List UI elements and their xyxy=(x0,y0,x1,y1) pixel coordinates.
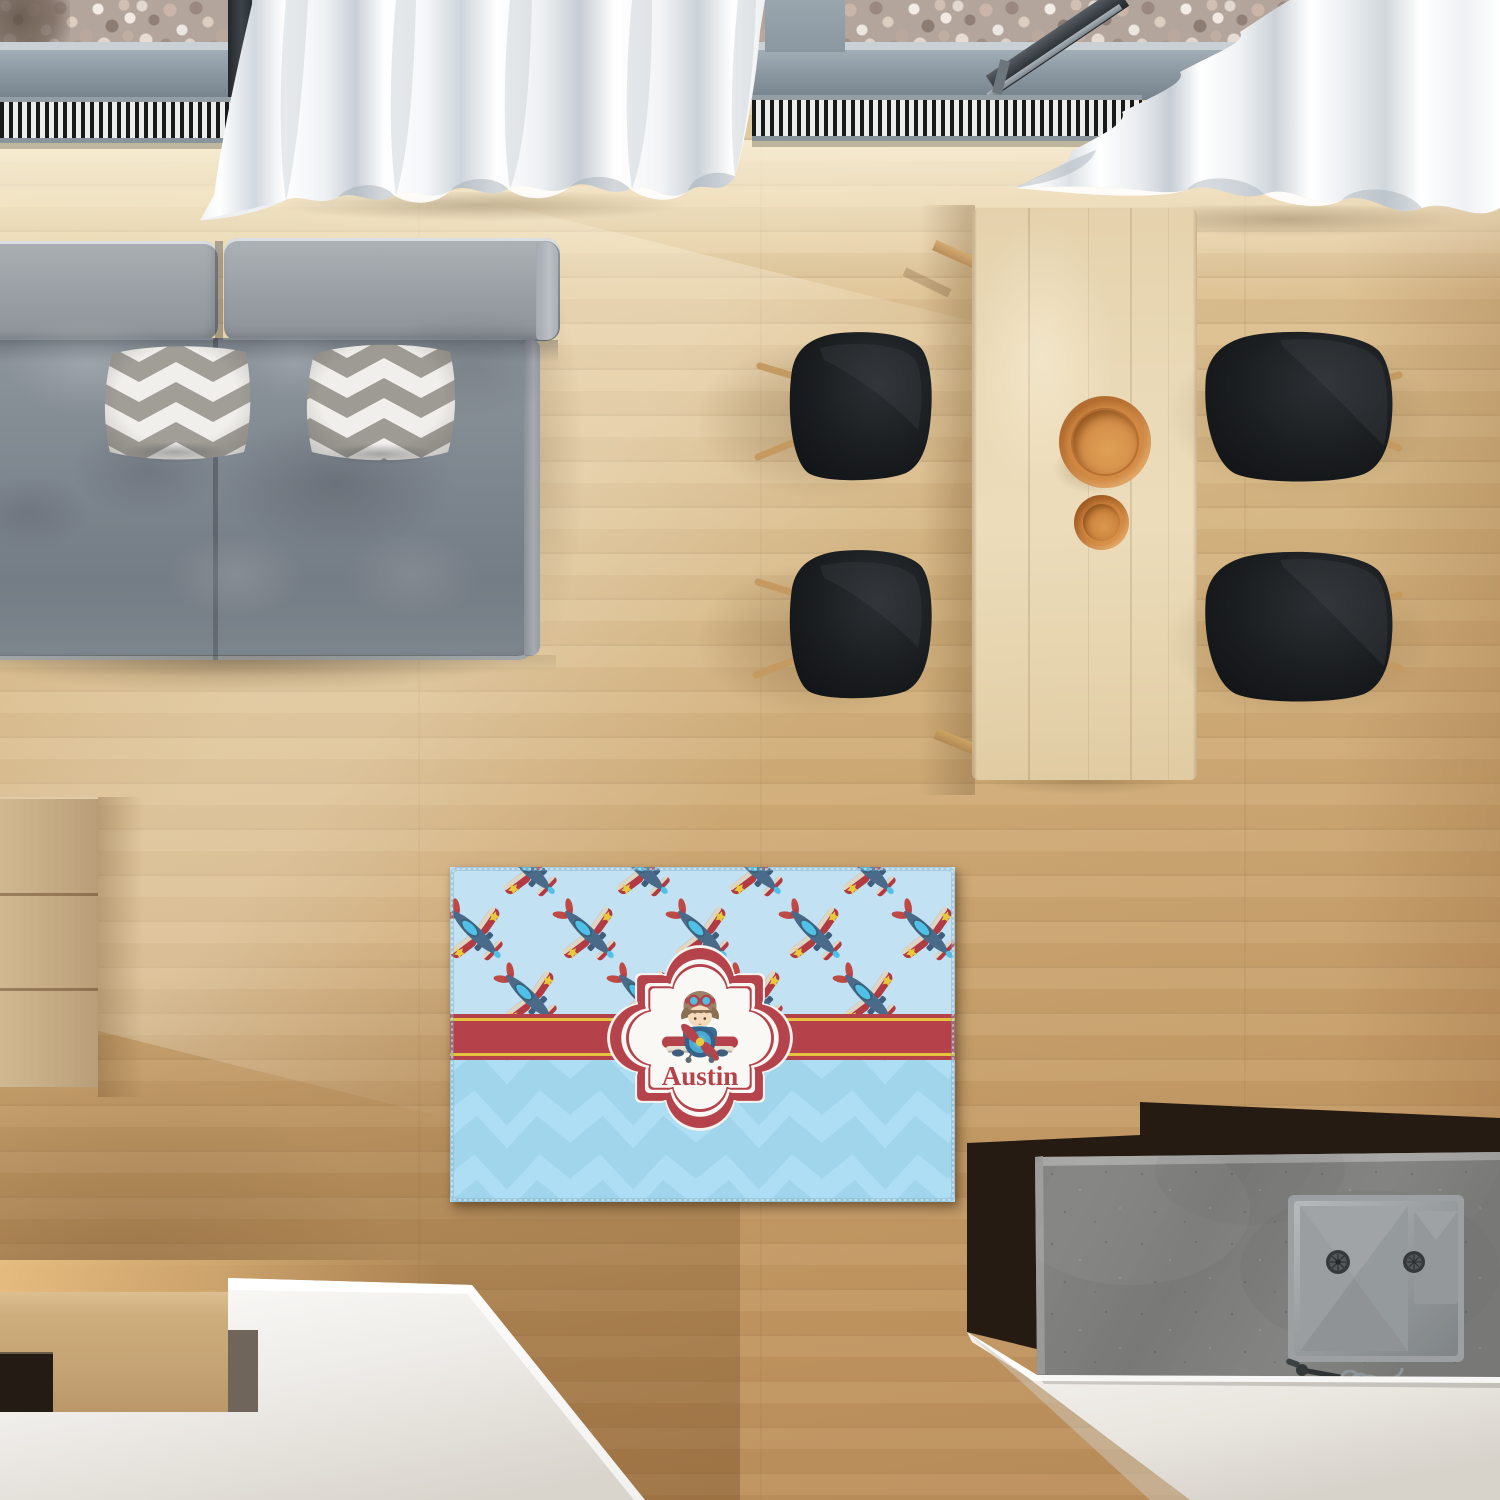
svg-text:Austin: Austin xyxy=(662,1061,739,1091)
